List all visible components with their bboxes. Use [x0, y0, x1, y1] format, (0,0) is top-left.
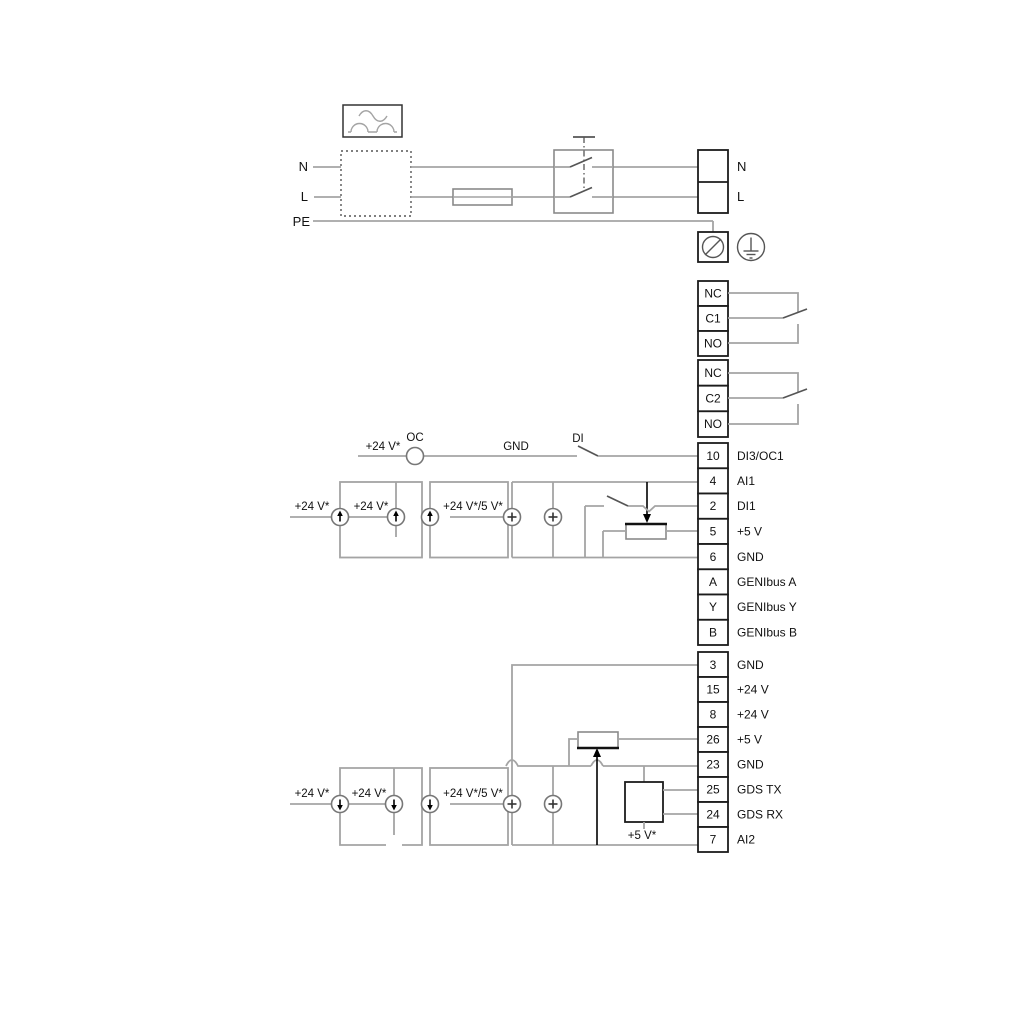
- terminal-label: GENIbus Y: [737, 600, 797, 614]
- terminal-pin: B: [709, 626, 717, 640]
- wiring-diagram: N L PE N L: [0, 0, 1024, 1024]
- potentiometer-2: [578, 732, 618, 748]
- terminal-pin: 15: [706, 683, 720, 697]
- relay2-com: C2: [705, 392, 721, 406]
- ann-gds-pullup: +5 V*: [628, 830, 657, 842]
- terminal-pin: 25: [706, 783, 720, 797]
- relay1-block: NC C1 NO: [698, 281, 807, 356]
- terminal-pin: 3: [710, 658, 717, 672]
- potentiometer-1: [626, 524, 666, 539]
- terminal-pin: 8: [710, 708, 717, 722]
- di1-wire: [628, 506, 698, 512]
- gds-module: [625, 782, 663, 822]
- lower-main-wiring: [506, 665, 698, 845]
- terminal-pin: 6: [710, 550, 717, 564]
- upper-main-wiring: [512, 482, 698, 558]
- oc-contact-circle: [407, 448, 424, 465]
- label-l-right: L: [737, 189, 744, 204]
- ann-oc: OC: [406, 432, 423, 444]
- earth-symbol: [738, 234, 765, 261]
- current-source-up-icon: [332, 509, 349, 526]
- terminal-label: GND: [737, 550, 764, 564]
- ann-di: DI: [572, 433, 584, 445]
- ann-l-supply3: +24 V*/5 V*: [443, 788, 503, 800]
- mains-switch: [554, 137, 613, 213]
- terminal-pin: Y: [709, 600, 717, 614]
- ann-gnd: GND: [503, 441, 529, 453]
- terminal-label: DI3/OC1: [737, 449, 784, 463]
- label-n-right: N: [737, 159, 746, 174]
- ann-l-supply2: +24 V*: [352, 788, 387, 800]
- terminal-pin: 24: [706, 808, 720, 822]
- terminal-label: +5 V: [737, 733, 762, 747]
- terminal-label: +24 V: [737, 683, 769, 697]
- di1-switch-blade: [607, 496, 628, 506]
- current-source-up-icon: [388, 509, 405, 526]
- relay1-contact-blade: [783, 309, 807, 318]
- relay2-contact-blade: [783, 389, 807, 398]
- terminal-label: GND: [737, 658, 764, 672]
- ann-u-supply2: +24 V*: [354, 501, 389, 513]
- earth-screw-terminal: [698, 232, 728, 262]
- current-source-down-icon: [332, 796, 349, 813]
- voltage-source-plus-icon: [504, 796, 521, 813]
- terminal-pin: A: [709, 575, 717, 589]
- relay1-no: NO: [704, 337, 722, 351]
- ac-dc-symbol: [343, 105, 402, 137]
- ann-u-supply3: +24 V*/5 V*: [443, 501, 503, 513]
- terminal-label: AI1: [737, 474, 755, 488]
- terminal-pin: 26: [706, 733, 720, 747]
- label-pe: PE: [293, 214, 311, 229]
- terminal-label: GENIbus A: [737, 575, 796, 589]
- terminal-label: GDS RX: [737, 808, 783, 822]
- current-source-down-icon: [422, 796, 439, 813]
- current-source-up-icon: [422, 509, 439, 526]
- gnd3-wire: [512, 665, 698, 845]
- terminal-label: +24 V: [737, 708, 769, 722]
- mains-terminal-block: [698, 150, 728, 213]
- voltage-source-plus-icon: [504, 509, 521, 526]
- terminal-label: GDS TX: [737, 783, 781, 797]
- ann-u-supply1: +24 V*: [295, 501, 330, 513]
- terminal-label: +5 V: [737, 525, 762, 539]
- voltage-source-plus-icon: [545, 509, 562, 526]
- terminal-pin: 7: [710, 833, 717, 847]
- wiring-diagram-page: N L PE N L: [0, 0, 1024, 1024]
- terminal-pin: 23: [706, 758, 720, 772]
- ann-oc-supply: +24 V*: [366, 441, 401, 453]
- switch-blade-n: [570, 158, 592, 168]
- switch-blade-l: [570, 188, 592, 198]
- io-terminal-block: 10 4 2 5 6 A Y B DI3/OC1 AI1 DI1 +5 V GN…: [698, 443, 797, 645]
- terminal-pin: 5: [710, 525, 717, 539]
- di-switch-blade: [578, 446, 598, 456]
- relay2-no: NO: [704, 417, 722, 431]
- voltage-source-plus-icon: [545, 796, 562, 813]
- pe-wire: [313, 221, 713, 232]
- label-n-left: N: [299, 159, 308, 174]
- aux-terminal-block: 3 15 8 26 23 25 24 7 GND +24 V +24 V +5 …: [698, 652, 783, 852]
- current-source-down-icon: [386, 796, 403, 813]
- relay1-com: C1: [705, 312, 721, 326]
- ann-l-supply1: +24 V*: [295, 788, 330, 800]
- terminal-pin: 4: [710, 474, 717, 488]
- relay2-block: NC C2 NO: [698, 360, 807, 437]
- terminal-pin: 10: [706, 449, 720, 463]
- terminal-label: GENIbus B: [737, 626, 797, 640]
- relay1-nc: NC: [704, 287, 722, 301]
- terminal-label: AI2: [737, 833, 755, 847]
- relay2-nc: NC: [704, 366, 722, 380]
- l-wire: [314, 189, 698, 205]
- terminal-label: GND: [737, 758, 764, 772]
- terminal-pin: 2: [710, 499, 717, 513]
- label-l-left: L: [301, 189, 308, 204]
- emc-filter-box: [341, 151, 411, 216]
- terminal-label: DI1: [737, 499, 756, 513]
